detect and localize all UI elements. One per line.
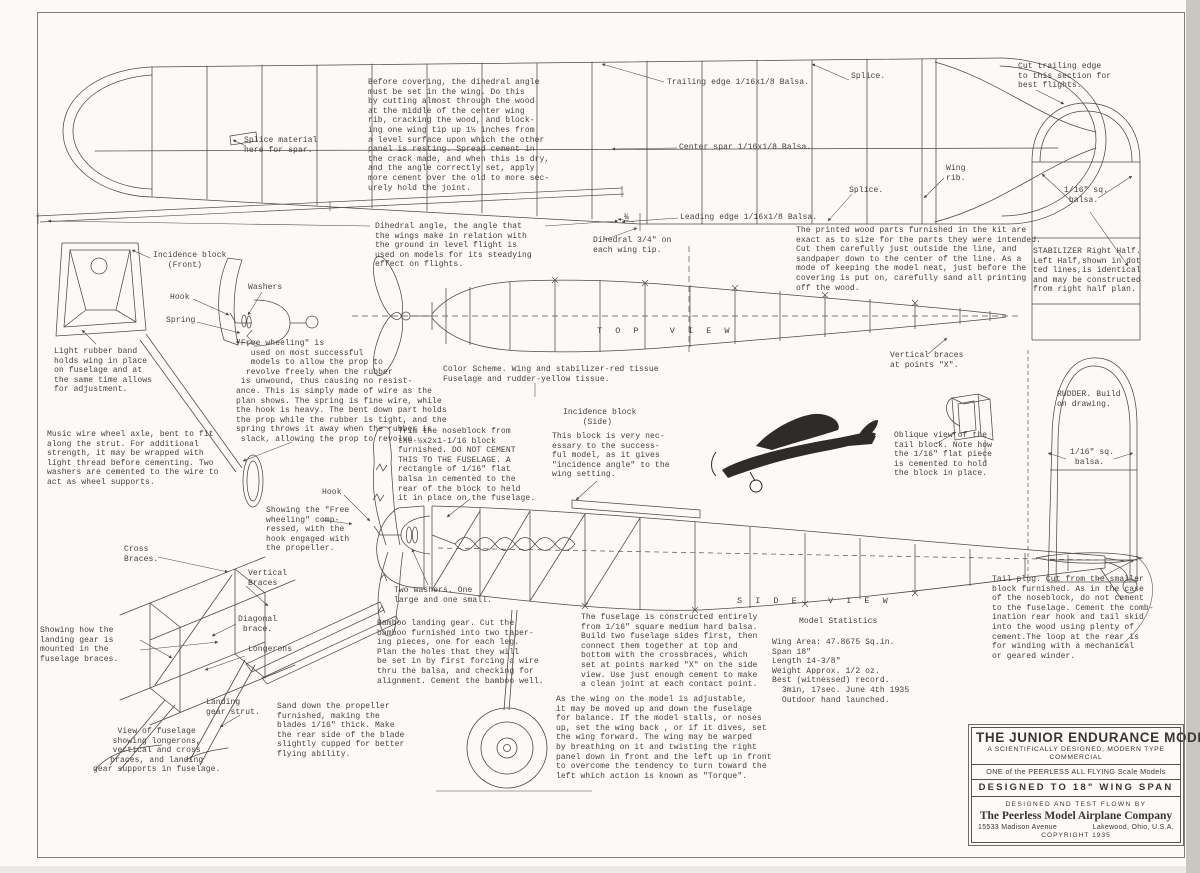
note-fuselage-view: View of fuselage showing longerons, vert… [93, 727, 220, 775]
note-dihedral-mark: ¾ [624, 213, 629, 223]
note-washers: Washers [248, 283, 282, 293]
note-music-wire: Music wire wheel axle, bent to fit along… [47, 430, 219, 488]
note-center-spar: Center spar 1/16x1/8 Balsa. [679, 143, 811, 153]
flown-by-line: DESIGNED AND TEST FLOWN BY [976, 801, 1176, 808]
note-sand-prop: Sand down the propeller furnished, makin… [277, 702, 404, 760]
model-subtitle-1: A SCIENTIFICALLY DESIGNED, MODERN TYPE [976, 746, 1176, 753]
wing-front-view-drawing [36, 186, 640, 231]
company-address: 15533 Madison Avenue Lakewood, Ohio, U.S… [976, 824, 1176, 831]
title-block-span: DESIGNED TO 18" WING SPAN [972, 780, 1180, 797]
note-rudder: RUDDER. Build on drawing. [1057, 390, 1121, 409]
motor-line-dashed [438, 548, 1098, 560]
note-gear-mounted: Showing how the landing gear is mounted … [40, 626, 118, 664]
label-top-view: T O P V I E W [597, 327, 734, 337]
note-vertical-braces-x: Vertical braces at points "X". [890, 351, 964, 370]
title-block-header: THE JUNIOR ENDURANCE MODEL A SCIENTIFICA… [972, 728, 1180, 765]
copyright-line: COPYRIGHT 1935 [976, 832, 1176, 839]
note-rudder-balsa: 1/16" sq. balsa. [1070, 448, 1114, 467]
series-line: ONE of the PEERLESS ALL FLYING Scale Mod… [976, 767, 1176, 776]
note-hook-bottom: Hook [322, 488, 342, 498]
note-wing-adjustable: As the wing on the model is adjustable, … [556, 695, 772, 781]
note-stabilizer: STABILIZER Right Half. Left Half,shown i… [1033, 247, 1141, 295]
note-cross-braces: Cross Braces. [124, 545, 158, 564]
note-tail-plug: Tail plug. Cut from the smaller block fu… [992, 575, 1154, 661]
note-stab-balsa: 1/16" sq. balsa. [1064, 186, 1108, 205]
freewheel-detail-drawing [219, 258, 318, 346]
note-vertical-braces: Vertical Braces [248, 569, 287, 588]
title-block: THE JUNIOR ENDURANCE MODEL A SCIENTIFICA… [971, 727, 1181, 843]
note-splice-material: Splice material here for spar. [244, 136, 318, 155]
note-longerons: Longerons [248, 645, 292, 655]
note-printed-wood: The printed wood parts furnished in the … [796, 226, 1041, 293]
note-wing-rib: Wing rib. [946, 164, 966, 183]
model-subtitle-2: COMMERCIAL [976, 754, 1176, 761]
note-trim-noseblock: Trim the noseblock from the ½x2x1-1/16 b… [398, 427, 535, 504]
note-diagonal-brace: Diagonal brace. [238, 615, 277, 634]
note-incidence-side-body: This block is very nec- essary to the su… [552, 432, 670, 480]
note-leading-edge: Leading edge 1/16x1/8 Balsa. [680, 213, 817, 223]
note-gear-strut: Landing gear strut. [206, 698, 260, 717]
note-hook-top: Hook [170, 293, 190, 303]
plan-sheet: { "colors": { "paper": "#fbfaf7", "ink":… [0, 0, 1200, 873]
stats-body: Wing Area: 47.8675 Sq.in. Span 18" Lengt… [772, 638, 909, 705]
note-two-washers: Two washers. One large and one small. [394, 586, 492, 605]
note-fuselage-construction: The fuselage is constructed entirely fro… [581, 613, 757, 690]
note-cut-trailing-edge: Cut trailing edge to this section for be… [1018, 62, 1111, 91]
model-name: THE JUNIOR ENDURANCE MODEL [976, 730, 1176, 745]
note-bamboo: Bamboo landing gear. Cut the bamboo furn… [377, 619, 544, 686]
note-spring: Spring [166, 316, 195, 326]
note-trailing-edge: Trailing edge 1/16x1/8 Balsa. [667, 78, 809, 88]
note-oblique-view: Oblique view of the tail block. Note how… [894, 431, 992, 479]
note-incidence-front: Incidence block (Front) [153, 251, 227, 270]
note-dihedral-wing-tip: Dihedral 3/4" on each wing tip. [593, 236, 671, 255]
stats-title: Model Statistics [799, 617, 877, 627]
note-rubber-band: Light rubber band holds wing in place on… [54, 347, 152, 395]
title-block-company: DESIGNED AND TEST FLOWN BY The Peerless … [972, 797, 1180, 842]
note-splice-top: Splice. [851, 72, 885, 82]
designed-to-line: DESIGNED TO 18" WING SPAN [976, 782, 1176, 793]
note-dihedral-angle: Dihedral angle, the angle that the wings… [375, 222, 532, 270]
company-name: The Peerless Model Airplane Company [976, 810, 1176, 822]
note-freewheel-compressed: Showing the "Free wheeling" comp- ressed… [266, 506, 349, 554]
airplane-silhouette-art [712, 414, 879, 492]
title-block-series: ONE of the PEERLESS ALL FLYING Scale Mod… [972, 765, 1180, 780]
label-side-view: S I D E V I E W [737, 597, 892, 607]
wing-plan-drawing [63, 58, 1106, 224]
address-city: Lakewood, Ohio, U.S.A. [1093, 824, 1174, 831]
note-splice-lower: Splice. [849, 186, 883, 196]
rubber-motor-drawing [432, 535, 575, 551]
note-before-covering: Before covering, the dihedral angle must… [368, 78, 549, 193]
note-color-scheme: Color Scheme. Wing and stabilizer-red ti… [443, 365, 659, 384]
address-street: 15533 Madison Avenue [978, 824, 1057, 831]
note-incidence-side-title: Incidence block (Side) [563, 408, 637, 427]
stabilizer-drawing [1032, 103, 1140, 340]
